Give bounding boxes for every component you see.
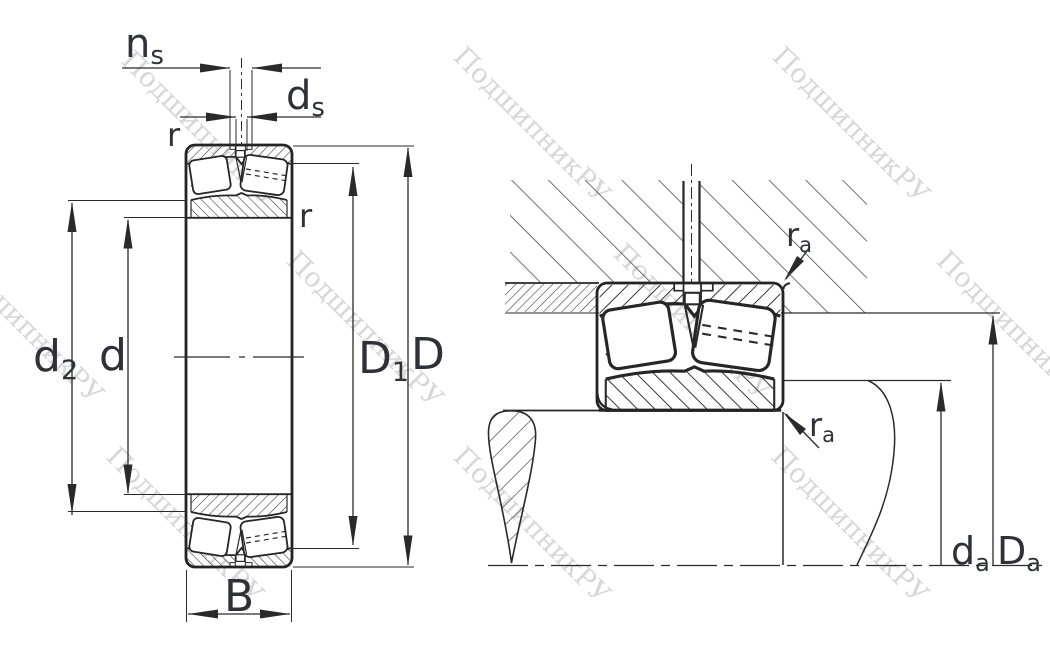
housing-band-hatch xyxy=(505,284,597,312)
watermark-text: ПодшипникРУ xyxy=(0,241,109,410)
watermark-layer: ПодшипникРУ ПодшипникРУ ПодшипникРУ Подш… xyxy=(0,41,1050,610)
label-D1: D1 xyxy=(358,333,409,388)
label-Da: Da xyxy=(997,529,1041,577)
label-ra-bottom: ra xyxy=(809,406,835,447)
label-B: B xyxy=(224,571,254,622)
label-ds: ds xyxy=(286,73,325,123)
label-D: D xyxy=(411,329,445,380)
bearing-dimension-drawing: ПодшипникРУ ПодшипникРУ ПодшипникРУ Подш… xyxy=(0,0,1050,650)
label-d: d xyxy=(99,330,127,381)
left-view-cross-section: ns ds r r d2 d D1 xyxy=(33,21,445,622)
label-ns: ns xyxy=(125,21,164,71)
watermark-text: ПодшипникРУ xyxy=(930,245,1050,414)
label-r-top: r xyxy=(167,116,181,154)
drawing-canvas: ПодшипникРУ ПодшипникРУ ПодшипникРУ Подш… xyxy=(0,0,1050,650)
label-da: da xyxy=(951,529,990,577)
watermark-text: ПодшипникРУ xyxy=(765,441,934,610)
right-view-mounting-section: ra ra da Da xyxy=(488,164,1042,577)
label-r-side: r xyxy=(299,197,313,235)
